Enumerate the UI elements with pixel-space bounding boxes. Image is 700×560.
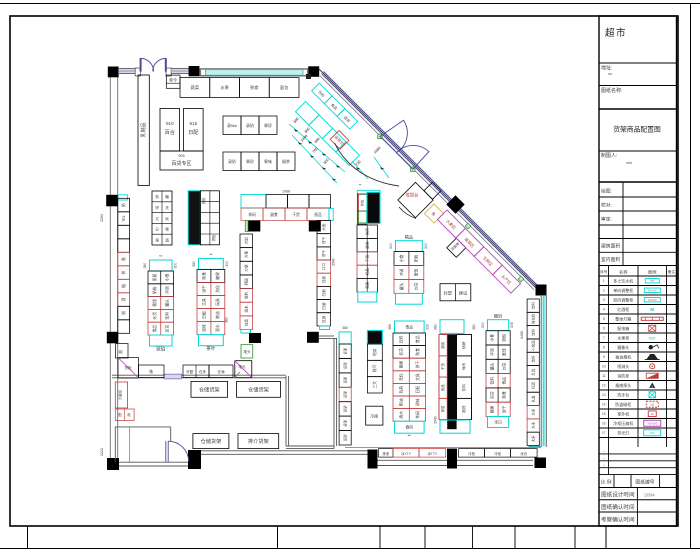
svg-text:17: 17 <box>602 431 606 435</box>
svg-text:玩具: 玩具 <box>215 298 220 306</box>
svg-text:称今: 称今 <box>169 76 177 82</box>
svg-text:单向调整柜: 单向调整柜 <box>613 287 633 293</box>
svg-text:堆头: 堆头 <box>243 349 251 354</box>
svg-text:白酒: 白酒 <box>321 289 326 297</box>
svg-text:文: 文 <box>155 216 159 221</box>
svg-text:111: 111 <box>650 403 655 407</box>
svg-text:5: 5 <box>603 317 605 321</box>
svg-text:915: 915 <box>189 121 197 126</box>
svg-text:烟: 烟 <box>121 284 126 288</box>
svg-text:比 例: 比 例 <box>601 479 612 486</box>
svg-text:面包: 面包 <box>280 84 289 91</box>
svg-text:蜜饯: 蜜饯 <box>414 268 419 276</box>
svg-text:1068: 1068 <box>282 190 290 194</box>
svg-text:小食: 小食 <box>399 254 404 262</box>
svg-text:图例: 图例 <box>648 269 656 276</box>
svg-text:粮: 粮 <box>165 227 169 232</box>
svg-text:韩国: 韩国 <box>243 278 248 286</box>
svg-text:14: 14 <box>602 403 606 407</box>
svg-text:排汽: 排汽 <box>372 365 377 373</box>
svg-text:双向调整柜: 双向调整柜 <box>613 296 633 302</box>
svg-text:仓储货架: 仓储货架 <box>201 437 222 445</box>
svg-text:905: 905 <box>178 154 184 158</box>
svg-text:拖: 拖 <box>149 369 153 374</box>
svg-text:建设: 建设 <box>459 290 468 297</box>
svg-text:300: 300 <box>389 243 393 249</box>
svg-text:日配: 日配 <box>188 129 199 136</box>
svg-text:灯具: 灯具 <box>530 368 535 375</box>
svg-text:百货专区: 百货专区 <box>171 160 191 167</box>
svg-text:方便: 方便 <box>243 264 248 272</box>
svg-text:***: *** <box>626 162 632 168</box>
svg-text:消防栓: 消防栓 <box>617 372 629 378</box>
svg-text:蜜饯: 蜜饯 <box>152 299 157 307</box>
svg-text:货柜: 货柜 <box>124 365 132 370</box>
svg-text:蜜饯: 蜜饯 <box>502 348 507 356</box>
svg-text:红酒: 红酒 <box>530 382 535 389</box>
svg-text:收银台: 收银台 <box>406 192 419 199</box>
svg-text:蔬菜: 蔬菜 <box>191 84 200 91</box>
svg-text:380: 380 <box>225 317 229 323</box>
svg-text:白酒: 白酒 <box>321 302 326 310</box>
svg-text:600: 600 <box>650 431 655 435</box>
svg-text:饼: 饼 <box>155 205 159 210</box>
svg-text:湘: 湘 <box>121 311 126 315</box>
svg-text:排泄: 排泄 <box>382 451 389 456</box>
svg-text:调味: 调味 <box>415 398 420 406</box>
svg-text:糖果: 糖果 <box>399 361 404 369</box>
svg-text:16: 16 <box>602 422 606 426</box>
svg-text:300: 300 <box>225 261 229 267</box>
svg-text:奶粉: 奶粉 <box>414 254 419 262</box>
svg-text:室外机: 室外机 <box>617 410 629 416</box>
svg-text:货架: 货架 <box>342 419 347 426</box>
svg-text:2: 2 <box>603 289 605 293</box>
svg-text:货架商品配置图: 货架商品配置图 <box>613 125 661 134</box>
svg-text:序号: 序号 <box>600 269 608 274</box>
svg-text:TEL: TEL <box>122 215 126 222</box>
svg-text:图纸确认时间: 图纸确认时间 <box>601 503 635 511</box>
svg-text:方便: 方便 <box>243 250 248 258</box>
svg-text:冲调: 冲调 <box>399 268 404 276</box>
svg-text:干货: 干货 <box>440 362 445 369</box>
svg-text:家居: 家居 <box>440 405 445 412</box>
svg-text:12: 12 <box>602 384 606 388</box>
svg-text:日: 日 <box>155 228 159 232</box>
svg-text:酒: 酒 <box>165 237 169 242</box>
svg-text:录奶: 录奶 <box>228 158 236 164</box>
svg-text:饮料: 饮料 <box>530 328 535 335</box>
svg-text:湘: 湘 <box>118 350 123 354</box>
svg-text:仓多: 仓多 <box>199 369 207 374</box>
svg-text:食品: 食品 <box>152 325 157 333</box>
svg-text:名称: 名称 <box>619 269 627 276</box>
svg-text:大米: 大米 <box>530 422 535 429</box>
svg-text:货架: 货架 <box>342 391 347 398</box>
svg-text:烧烤: 烧烤 <box>461 341 466 349</box>
svg-text:奶: 奶 <box>121 203 126 207</box>
svg-text:15: 15 <box>602 412 606 416</box>
svg-text:三文: 三文 <box>372 381 377 389</box>
svg-text:**: ** <box>209 252 213 257</box>
svg-text:300: 300 <box>481 322 485 328</box>
svg-text:乳制品: 乳制品 <box>140 122 147 137</box>
svg-text:冷柜: 冷柜 <box>468 451 475 456</box>
svg-text:302: 302 <box>426 324 430 330</box>
svg-text:米白: 米白 <box>494 420 502 425</box>
svg-text:副食: 副食 <box>270 212 278 217</box>
svg-text:饼干: 饼干 <box>201 285 206 293</box>
svg-text:录奶: 录奶 <box>246 122 254 128</box>
svg-text:4: 4 <box>603 308 605 312</box>
svg-text:茶叶: 茶叶 <box>206 345 216 352</box>
svg-text:1: 1 <box>603 279 605 283</box>
svg-text:酒水: 酒水 <box>215 324 220 332</box>
svg-text:货架: 货架 <box>342 405 347 412</box>
svg-text:300: 300 <box>174 263 178 269</box>
svg-text:熟食: 熟食 <box>415 348 420 356</box>
svg-text:380: 380 <box>143 263 147 269</box>
svg-text:**: ** <box>608 73 612 79</box>
svg-text:9: 9 <box>603 355 605 359</box>
svg-text:糖果: 糖果 <box>489 405 494 413</box>
svg-text:炒货: 炒货 <box>152 312 157 320</box>
svg-text:百货: 百货 <box>489 391 494 399</box>
svg-text:奶粉: 奶粉 <box>152 286 157 294</box>
svg-text:6: 6 <box>603 327 605 331</box>
svg-text:图纸编号: 图纸编号 <box>635 479 654 486</box>
svg-text:700 600: 700 600 <box>647 422 658 426</box>
svg-text:荧光灯: 荧光灯 <box>617 429 629 435</box>
svg-text:仓海: 仓海 <box>217 369 225 374</box>
svg-text:罐头: 罐头 <box>165 299 170 307</box>
svg-text:地址:: 地址: <box>601 65 612 72</box>
svg-text:春风: 春风 <box>406 425 414 430</box>
svg-text:8: 8 <box>603 346 605 350</box>
svg-text:洗化: 洗化 <box>215 285 220 293</box>
svg-text:副食: 副食 <box>440 341 445 348</box>
svg-text:酒: 酒 <box>121 297 126 301</box>
svg-text:386: 386 <box>388 324 392 330</box>
svg-text:380: 380 <box>434 324 438 330</box>
svg-text:百合: 百合 <box>165 128 176 136</box>
svg-text:冲调: 冲调 <box>165 286 170 294</box>
svg-text:红酒柜: 红酒柜 <box>617 306 629 312</box>
svg-text:熟食: 熟食 <box>502 391 507 399</box>
svg-text:强化奶: 强化奶 <box>530 313 535 324</box>
svg-text:饮料: 饮料 <box>399 335 404 343</box>
svg-text:调: 调 <box>155 237 159 242</box>
svg-text:饼干: 饼干 <box>321 236 326 244</box>
svg-text:茶: 茶 <box>121 270 126 274</box>
svg-text:冰TTY: 冰TTY <box>427 451 438 456</box>
svg-text:地瓜: 地瓜 <box>372 348 377 356</box>
svg-text:备注: 备注 <box>668 269 676 274</box>
svg-text:整体灯箱: 整体灯箱 <box>615 315 631 321</box>
svg-text:罐头: 罐头 <box>399 282 404 290</box>
svg-text:熟: 熟 <box>155 194 159 199</box>
svg-text:烟茶: 烟茶 <box>282 158 290 164</box>
svg-text:306: 306 <box>510 322 514 328</box>
svg-text:拼柜: 拼柜 <box>211 234 216 241</box>
svg-text:货架: 货架 <box>342 434 347 441</box>
svg-text:饼干: 饼干 <box>502 405 507 413</box>
svg-text:M: M <box>650 307 654 312</box>
svg-text:仓储货架: 仓储货架 <box>248 386 269 394</box>
svg-text:冲调: 冲调 <box>489 348 494 356</box>
svg-text:2004: 2004 <box>644 493 655 499</box>
svg-text:果珍: 果珍 <box>246 158 254 164</box>
svg-text:饼干: 饼干 <box>415 361 420 369</box>
svg-text:抽油烟机: 抽油烟机 <box>615 353 631 359</box>
svg-text:冷藏柜: 冷藏柜 <box>118 389 123 400</box>
svg-text:3460: 3460 <box>520 331 524 339</box>
svg-text:13: 13 <box>602 393 606 397</box>
svg-text:熟食: 熟食 <box>250 84 259 91</box>
svg-text:日配: 日配 <box>415 386 420 394</box>
svg-text:食品: 食品 <box>415 335 420 343</box>
svg-text:便利: 便利 <box>243 291 248 299</box>
svg-text:调味: 调味 <box>201 324 206 332</box>
svg-text:货架: 货架 <box>342 347 347 354</box>
svg-text:11: 11 <box>602 374 606 378</box>
svg-text:食品: 食品 <box>406 325 414 330</box>
svg-text:摄像头: 摄像头 <box>617 344 629 350</box>
svg-text:精品: 精品 <box>405 234 413 241</box>
svg-text:百货: 百货 <box>399 348 404 356</box>
svg-text:750: 750 <box>650 279 655 283</box>
svg-text:礼盒: 礼盒 <box>530 395 535 402</box>
svg-text:小食品: 小食品 <box>530 340 535 351</box>
svg-text:图纸设计时间: 图纸设计时间 <box>601 491 635 499</box>
svg-text:休闲: 休闲 <box>461 362 466 370</box>
svg-text:酒水: 酒水 <box>243 305 248 313</box>
svg-text:大班: 大班 <box>321 223 326 231</box>
svg-text:大姐: 大姐 <box>243 237 248 245</box>
svg-text:文具: 文具 <box>415 373 420 381</box>
svg-text:审定:: 审定: <box>601 216 612 223</box>
svg-text:炒货: 炒货 <box>502 362 507 370</box>
svg-text:休闲: 休闲 <box>415 411 420 419</box>
svg-text:300: 300 <box>424 243 428 249</box>
svg-text:饼干: 饼干 <box>321 249 326 257</box>
svg-text:380: 380 <box>342 326 348 330</box>
svg-text:文具: 文具 <box>201 298 206 306</box>
svg-text:排介货架: 排介货架 <box>248 437 269 445</box>
svg-text:日配: 日配 <box>201 311 206 319</box>
svg-text:糖: 糖 <box>165 194 169 199</box>
svg-text:多士饮水机: 多士饮水机 <box>613 277 633 283</box>
svg-text:冷面: 冷面 <box>370 413 378 419</box>
svg-text:制图人:: 制图人: <box>601 152 617 159</box>
svg-text:货架: 货架 <box>342 376 347 383</box>
svg-text:百货: 百货 <box>165 325 170 333</box>
svg-text:货架: 货架 <box>342 362 347 369</box>
svg-text:琥珀: 琥珀 <box>156 346 166 353</box>
svg-text:冷盟: 冷盟 <box>186 369 194 374</box>
svg-text:熟食: 熟食 <box>201 272 206 280</box>
svg-text:粮油: 粮油 <box>215 311 220 319</box>
svg-text:米仓: 米仓 <box>520 451 527 456</box>
svg-text:900x90: 900x90 <box>648 298 657 302</box>
svg-text:洗: 洗 <box>165 205 169 210</box>
svg-text:10: 10 <box>602 365 606 369</box>
svg-text:冷柜: 冷柜 <box>494 451 501 456</box>
svg-text:380: 380 <box>192 261 196 267</box>
svg-text:饮料: 饮料 <box>530 302 535 309</box>
svg-text:玩具: 玩具 <box>399 386 404 394</box>
svg-text:炒货: 炒货 <box>414 282 419 290</box>
svg-text:拼柜: 拼柜 <box>201 197 206 204</box>
svg-text:酒水: 酒水 <box>399 411 404 419</box>
svg-text:糖果: 糖果 <box>215 272 220 280</box>
svg-text:存包: 存包 <box>360 199 365 206</box>
svg-text:白酒: 白酒 <box>243 319 248 327</box>
svg-text:冷柜压缩机: 冷柜压缩机 <box>613 420 633 426</box>
svg-text:室内面积: 室内面积 <box>601 256 620 263</box>
svg-text:S: S <box>651 384 653 388</box>
svg-text:饮料: 饮料 <box>489 377 494 385</box>
svg-text:玩: 玩 <box>165 217 169 221</box>
svg-text:封塑: 封塑 <box>444 290 452 296</box>
svg-text:罐头: 罐头 <box>489 362 494 370</box>
svg-text:绘图:: 绘图: <box>601 188 612 195</box>
svg-text:红酒: 红酒 <box>321 315 326 323</box>
svg-text:3: 3 <box>603 298 605 302</box>
svg-text:仓储货架: 仓储货架 <box>199 386 220 394</box>
svg-text:1221: 1221 <box>100 448 104 456</box>
svg-text:饮料: 饮料 <box>461 384 466 392</box>
svg-text:**: ** <box>159 254 163 259</box>
svg-text:纸品: 纸品 <box>440 384 445 391</box>
svg-text:奶粉: 奶粉 <box>502 334 507 342</box>
svg-text:饮料: 饮料 <box>165 312 170 320</box>
svg-text:防盗磁柜: 防盗磁柜 <box>615 401 631 407</box>
svg-text:录like: 录like <box>227 122 238 128</box>
svg-text:休闲: 休闲 <box>248 212 256 217</box>
svg-text:饮料: 饮料 <box>530 355 535 362</box>
svg-text:建筑面积: 建筑面积 <box>601 243 620 250</box>
svg-text:7: 7 <box>603 336 605 340</box>
svg-text:果味: 果味 <box>264 158 272 164</box>
svg-text:喷淋头: 喷淋头 <box>617 363 629 369</box>
svg-text:2540: 2540 <box>434 416 438 424</box>
svg-text:白酒: 白酒 <box>321 276 326 284</box>
svg-text:水果柜: 水果柜 <box>617 334 629 340</box>
svg-text:考察确认时间: 考察确认时间 <box>601 516 635 524</box>
svg-text:配电箱: 配电箱 <box>617 325 629 331</box>
svg-text:冰YTY: 冰YTY <box>401 451 412 456</box>
svg-text:香: 香 <box>121 257 126 261</box>
svg-text:900x45: 900x45 <box>648 288 657 292</box>
svg-text:380: 380 <box>472 324 476 330</box>
svg-text:1201: 1201 <box>100 214 104 222</box>
svg-text:粮油: 粮油 <box>399 398 404 406</box>
svg-text:洗化: 洗化 <box>399 373 404 381</box>
svg-text:**: ** <box>408 434 412 439</box>
svg-text:家居: 家居 <box>152 273 157 281</box>
svg-text:M2K: M2K <box>649 336 657 340</box>
svg-text:纸品: 纸品 <box>314 212 322 217</box>
svg-text:大米: 大米 <box>530 435 535 442</box>
svg-text:小食: 小食 <box>489 334 494 342</box>
svg-text:校对:: 校对: <box>601 202 612 209</box>
svg-text:小食: 小食 <box>165 273 170 281</box>
svg-text:食品: 食品 <box>502 377 507 385</box>
svg-text:洗手台: 洗手台 <box>617 391 629 397</box>
svg-text:烟感探头: 烟感探头 <box>615 382 631 388</box>
svg-text:口口: 口口 <box>322 263 326 271</box>
svg-text:果珍: 果珍 <box>264 122 272 128</box>
svg-text:水果: 水果 <box>220 84 229 91</box>
svg-text:堆头: 堆头 <box>238 364 246 369</box>
svg-text:酸奶: 酸奶 <box>494 313 502 320</box>
svg-text:2540: 2540 <box>332 258 336 266</box>
svg-text:超市: 超市 <box>605 27 627 39</box>
svg-text:大米: 大米 <box>530 408 535 415</box>
svg-text:散货: 散货 <box>461 405 466 413</box>
svg-text:干货: 干货 <box>292 212 300 217</box>
svg-text:图纸名称:: 图纸名称: <box>601 87 622 94</box>
svg-text:910: 910 <box>166 121 174 126</box>
